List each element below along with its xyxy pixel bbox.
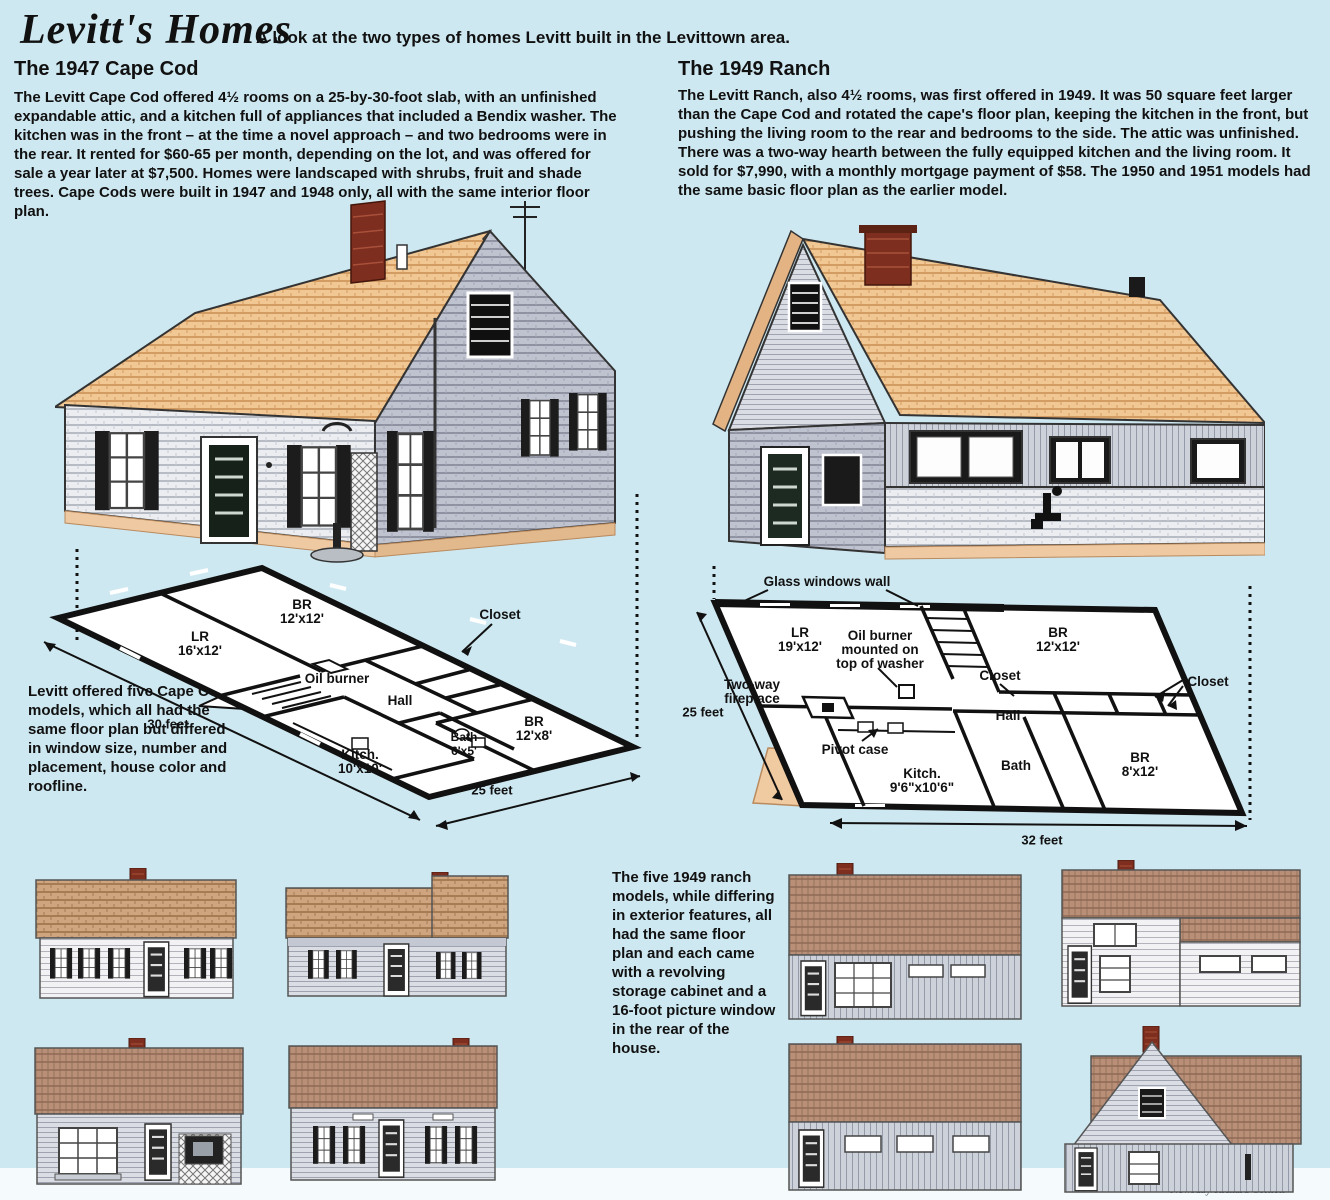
ranch-room-br2: BR8'x12' [1122, 751, 1158, 779]
cape-room-br2: BR12'x8' [516, 715, 552, 743]
cape-model-elevation-2 [284, 872, 510, 1000]
ranch-room-lr: LR19'x12' [778, 626, 822, 654]
floor-plans-layer [0, 0, 1330, 1200]
cape-dim-25-feet: 25 feet [471, 783, 512, 798]
cape-cod-house-illustration [55, 193, 645, 565]
ranch-house-illustration [705, 225, 1265, 565]
cape-model-elevation-3 [33, 1038, 246, 1195]
ranch-label-glass-wall: Glass windows wall [764, 575, 891, 589]
infographic-canvas: Levitt's Homes A look at the two types o… [0, 0, 1330, 1200]
cape-room-kitch: Kitch.10'x10' [338, 748, 382, 776]
ranch-model-elevation-3 [787, 1036, 1024, 1196]
ranch-label-pivot-case: Pivot case [822, 743, 889, 757]
cape-model-elevation-4 [287, 1038, 500, 1188]
ranch-room-bath: Bath [1001, 759, 1031, 773]
cape-room-bath: Bath6'x5' [451, 730, 478, 758]
cape-label-oil-burner: Oil burner [305, 672, 370, 686]
cape-dim-30-feet: 30 feet [147, 717, 188, 732]
ranch-model-elevation-2 [1060, 860, 1302, 1012]
cape-floor-plan [44, 568, 640, 830]
cape-model-elevation-1 [34, 868, 239, 1001]
cape-room-lr: LR16'x12' [178, 630, 222, 658]
ranch-model-elevation-1 [787, 863, 1024, 1027]
ranch-label-fireplace: Two-way fireplace [717, 678, 787, 706]
ranch-label-oil-burner: Oil burner mounted on top of washer [830, 629, 930, 671]
ranch-model-elevation-4 [1055, 1026, 1303, 1198]
ranch-label-closet-a: Closet [979, 669, 1020, 683]
ranch-label-hall: Hall [996, 709, 1021, 723]
ranch-room-br1: BR12'x12' [1036, 626, 1080, 654]
ranch-dim-32-feet: 32 feet [1021, 833, 1062, 848]
cape-label-closet: Closet [479, 608, 520, 622]
cape-room-br1: BR12'x12' [280, 598, 324, 626]
ranch-label-closet-b: Closet [1187, 675, 1228, 689]
cape-label-hall: Hall [388, 694, 413, 708]
ranch-dim-25-feet: 25 feet [682, 705, 723, 720]
ranch-room-kitch: Kitch.9'6"x10'6" [890, 767, 954, 795]
